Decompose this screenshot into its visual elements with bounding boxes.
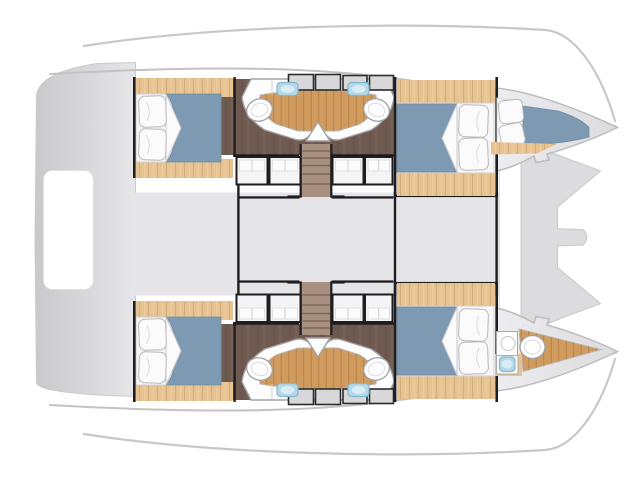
forepeak-vanity-bowl [501,337,515,351]
cockpit-bridgedeck-floor [134,193,499,296]
forepeak-pillow [498,99,524,124]
deck-plan-canvas [0,0,640,480]
foredeck-and-bowsprit [521,149,601,326]
saloon-wall-line [237,183,239,296]
catamaran-deck-plan [0,0,640,480]
saloon-wall-line [394,192,396,296]
transom-step-notch [44,171,94,290]
saloon-wall-line [495,192,497,296]
toilet [520,336,545,359]
washbasin-bowl [502,360,513,369]
port-hull-interior [133,75,498,198]
starboard-hull-interior [133,281,498,404]
